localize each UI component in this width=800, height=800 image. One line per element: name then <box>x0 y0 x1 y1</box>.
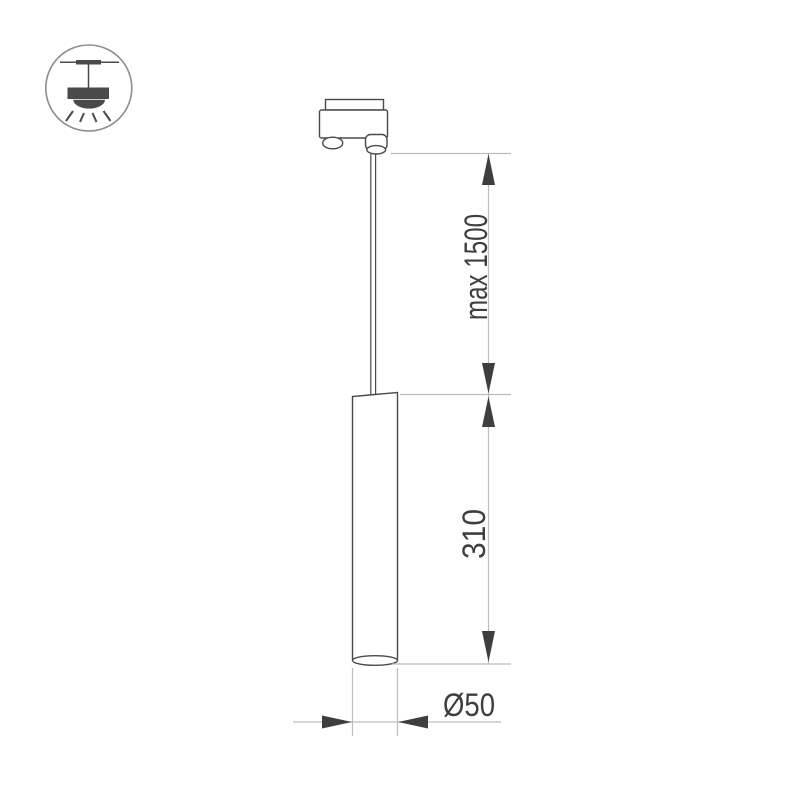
pendant-lamp-icon <box>46 45 132 131</box>
arrow-right-icon <box>322 716 352 729</box>
arrow-up-icon <box>482 397 495 428</box>
icon-light-ray <box>66 111 73 121</box>
arrow-down-icon <box>482 363 495 394</box>
lamp-tube <box>353 393 398 666</box>
dimension-label-body-length: 310 <box>456 509 492 559</box>
arrow-up-icon <box>482 154 495 185</box>
adapter-knob <box>323 137 343 149</box>
lamp-tube-bottom-cap <box>353 656 398 666</box>
adapter-top-plate <box>326 100 384 111</box>
arrow-down-icon <box>482 631 495 662</box>
icon-light-ray <box>104 111 111 121</box>
dimension-suspension-length: max 1500 <box>458 154 495 394</box>
dimension-label-diameter: Ø50 <box>443 687 495 723</box>
adapter-cord-grip-bottom <box>367 146 386 154</box>
dimension-label-suspension: max 1500 <box>458 214 494 320</box>
dimensions: max 1500 310 Ø50 <box>293 154 511 737</box>
arrow-left-icon <box>398 716 428 729</box>
luminaire-drawing <box>320 100 398 666</box>
icon-light-ray <box>93 113 97 122</box>
drawing-canvas: max 1500 310 Ø50 <box>0 0 800 800</box>
icon-lamp-shade <box>73 100 105 109</box>
icon-light-ray <box>80 113 84 122</box>
track-adapter <box>320 100 388 155</box>
dimension-diameter: Ø50 <box>293 668 501 736</box>
suspension-wire <box>371 154 376 395</box>
lamp-tube-body <box>353 393 398 661</box>
icon-lamp-body <box>68 88 110 100</box>
dimension-body-length: 310 <box>456 397 495 663</box>
technical-drawing: max 1500 310 Ø50 <box>0 0 800 800</box>
